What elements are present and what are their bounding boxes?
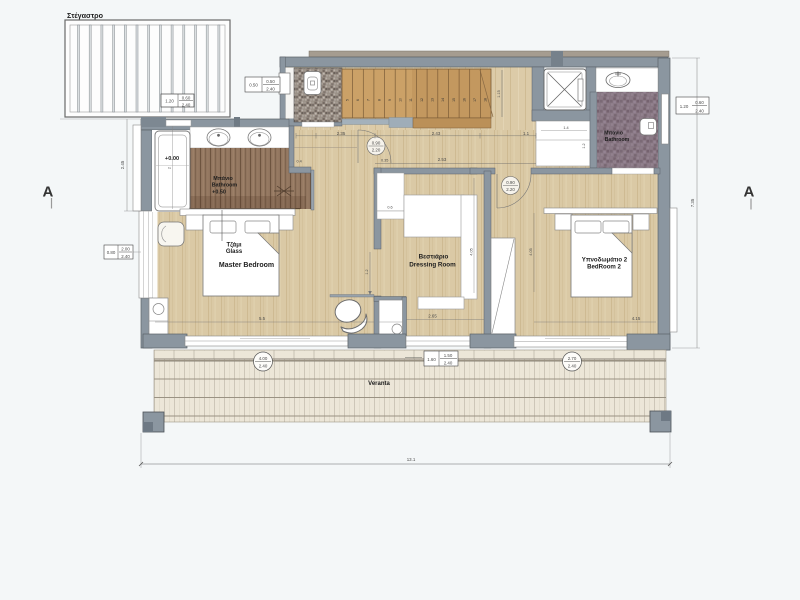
svg-text:0.35: 0.35: [381, 159, 388, 163]
svg-text:4.05: 4.05: [470, 248, 474, 255]
svg-text:2.40: 2.40: [259, 364, 268, 369]
svg-text:5: 5: [346, 99, 350, 101]
svg-text:16: 16: [462, 98, 466, 102]
svg-text:Τζάμι: Τζάμι: [226, 243, 241, 249]
svg-text:1.15: 1.15: [497, 90, 501, 97]
svg-text:2.40: 2.40: [695, 109, 704, 114]
svg-text:1.2: 1.2: [365, 269, 369, 274]
svg-text:13: 13: [431, 98, 435, 102]
svg-text:Bathroom: Bathroom: [605, 137, 630, 143]
svg-text:0.6: 0.6: [387, 206, 392, 210]
svg-text:2.40: 2.40: [568, 364, 577, 369]
svg-text:14: 14: [441, 98, 445, 102]
svg-text:1.20: 1.20: [680, 104, 689, 109]
svg-text:A: A: [43, 184, 54, 201]
svg-text:8: 8: [377, 99, 381, 101]
svg-text:2.40: 2.40: [444, 361, 453, 366]
svg-text:17: 17: [473, 98, 477, 102]
svg-text:Veranta: Veranta: [368, 381, 390, 387]
svg-text:2.00: 2.00: [121, 247, 130, 252]
svg-text:2: 2: [168, 167, 172, 169]
svg-text:1.60: 1.60: [427, 357, 436, 362]
svg-text:2.45: 2.45: [120, 160, 125, 169]
svg-text:7: 7: [367, 99, 371, 101]
svg-text:A: A: [744, 184, 755, 201]
svg-text:1.1: 1.1: [523, 131, 530, 136]
svg-text:2.40: 2.40: [182, 103, 191, 108]
svg-text:0.90: 0.90: [372, 141, 381, 146]
svg-text:2.20: 2.20: [506, 187, 515, 192]
svg-text:0.90: 0.90: [506, 180, 515, 185]
svg-text:1.2: 1.2: [582, 143, 586, 148]
svg-text:0.60: 0.60: [182, 96, 191, 101]
svg-text:0.50: 0.50: [266, 79, 275, 84]
svg-text:13.1: 13.1: [407, 457, 416, 462]
svg-text:12: 12: [420, 98, 424, 102]
svg-text:Bathroom: Bathroom: [212, 183, 238, 189]
svg-text:2.65: 2.65: [428, 314, 437, 319]
svg-text:Στέγαστρο: Στέγαστρο: [67, 11, 104, 20]
svg-text:2.70: 2.70: [568, 356, 577, 361]
svg-text:2.43: 2.43: [432, 131, 441, 136]
svg-text:BedRoom 2: BedRoom 2: [587, 263, 621, 270]
svg-text:4.00: 4.00: [259, 356, 268, 361]
svg-text:+0.00: +0.00: [165, 156, 179, 162]
svg-text:6: 6: [356, 99, 360, 101]
svg-text:2.20: 2.20: [372, 148, 381, 153]
svg-text:18: 18: [484, 98, 488, 102]
svg-text:1.50: 1.50: [444, 353, 453, 358]
svg-text:1.20: 1.20: [165, 99, 174, 104]
svg-text:1.4: 1.4: [563, 126, 568, 130]
svg-text:5.5: 5.5: [259, 316, 266, 321]
svg-text:Glass: Glass: [226, 249, 243, 255]
svg-text:2.35: 2.35: [337, 131, 346, 136]
svg-text:Βεστιάριο: Βεστιάριο: [419, 253, 449, 260]
svg-text:4.05: 4.05: [529, 248, 533, 255]
svg-text:0.80: 0.80: [107, 250, 116, 255]
svg-text:7.35: 7.35: [690, 198, 695, 207]
svg-text:4.15: 4.15: [632, 316, 641, 321]
svg-text:0.60: 0.60: [695, 100, 704, 105]
svg-text:9: 9: [388, 99, 392, 101]
svg-text:Master Bedroom: Master Bedroom: [219, 262, 274, 269]
svg-text:15: 15: [452, 98, 456, 102]
svg-text:0.4: 0.4: [297, 160, 302, 164]
svg-text:2.53: 2.53: [438, 157, 447, 162]
svg-text:10: 10: [399, 98, 403, 102]
svg-text:2.40: 2.40: [121, 254, 130, 259]
svg-text:Μπάνιο: Μπάνιο: [604, 131, 623, 137]
svg-text:+0.50: +0.50: [212, 190, 226, 196]
svg-text:Dressing Room: Dressing Room: [409, 261, 456, 268]
svg-text:2.40: 2.40: [266, 87, 275, 92]
svg-text:Μπάνιο: Μπάνιο: [213, 176, 233, 182]
svg-text:11: 11: [409, 98, 413, 102]
svg-text:0.50: 0.50: [249, 83, 258, 88]
